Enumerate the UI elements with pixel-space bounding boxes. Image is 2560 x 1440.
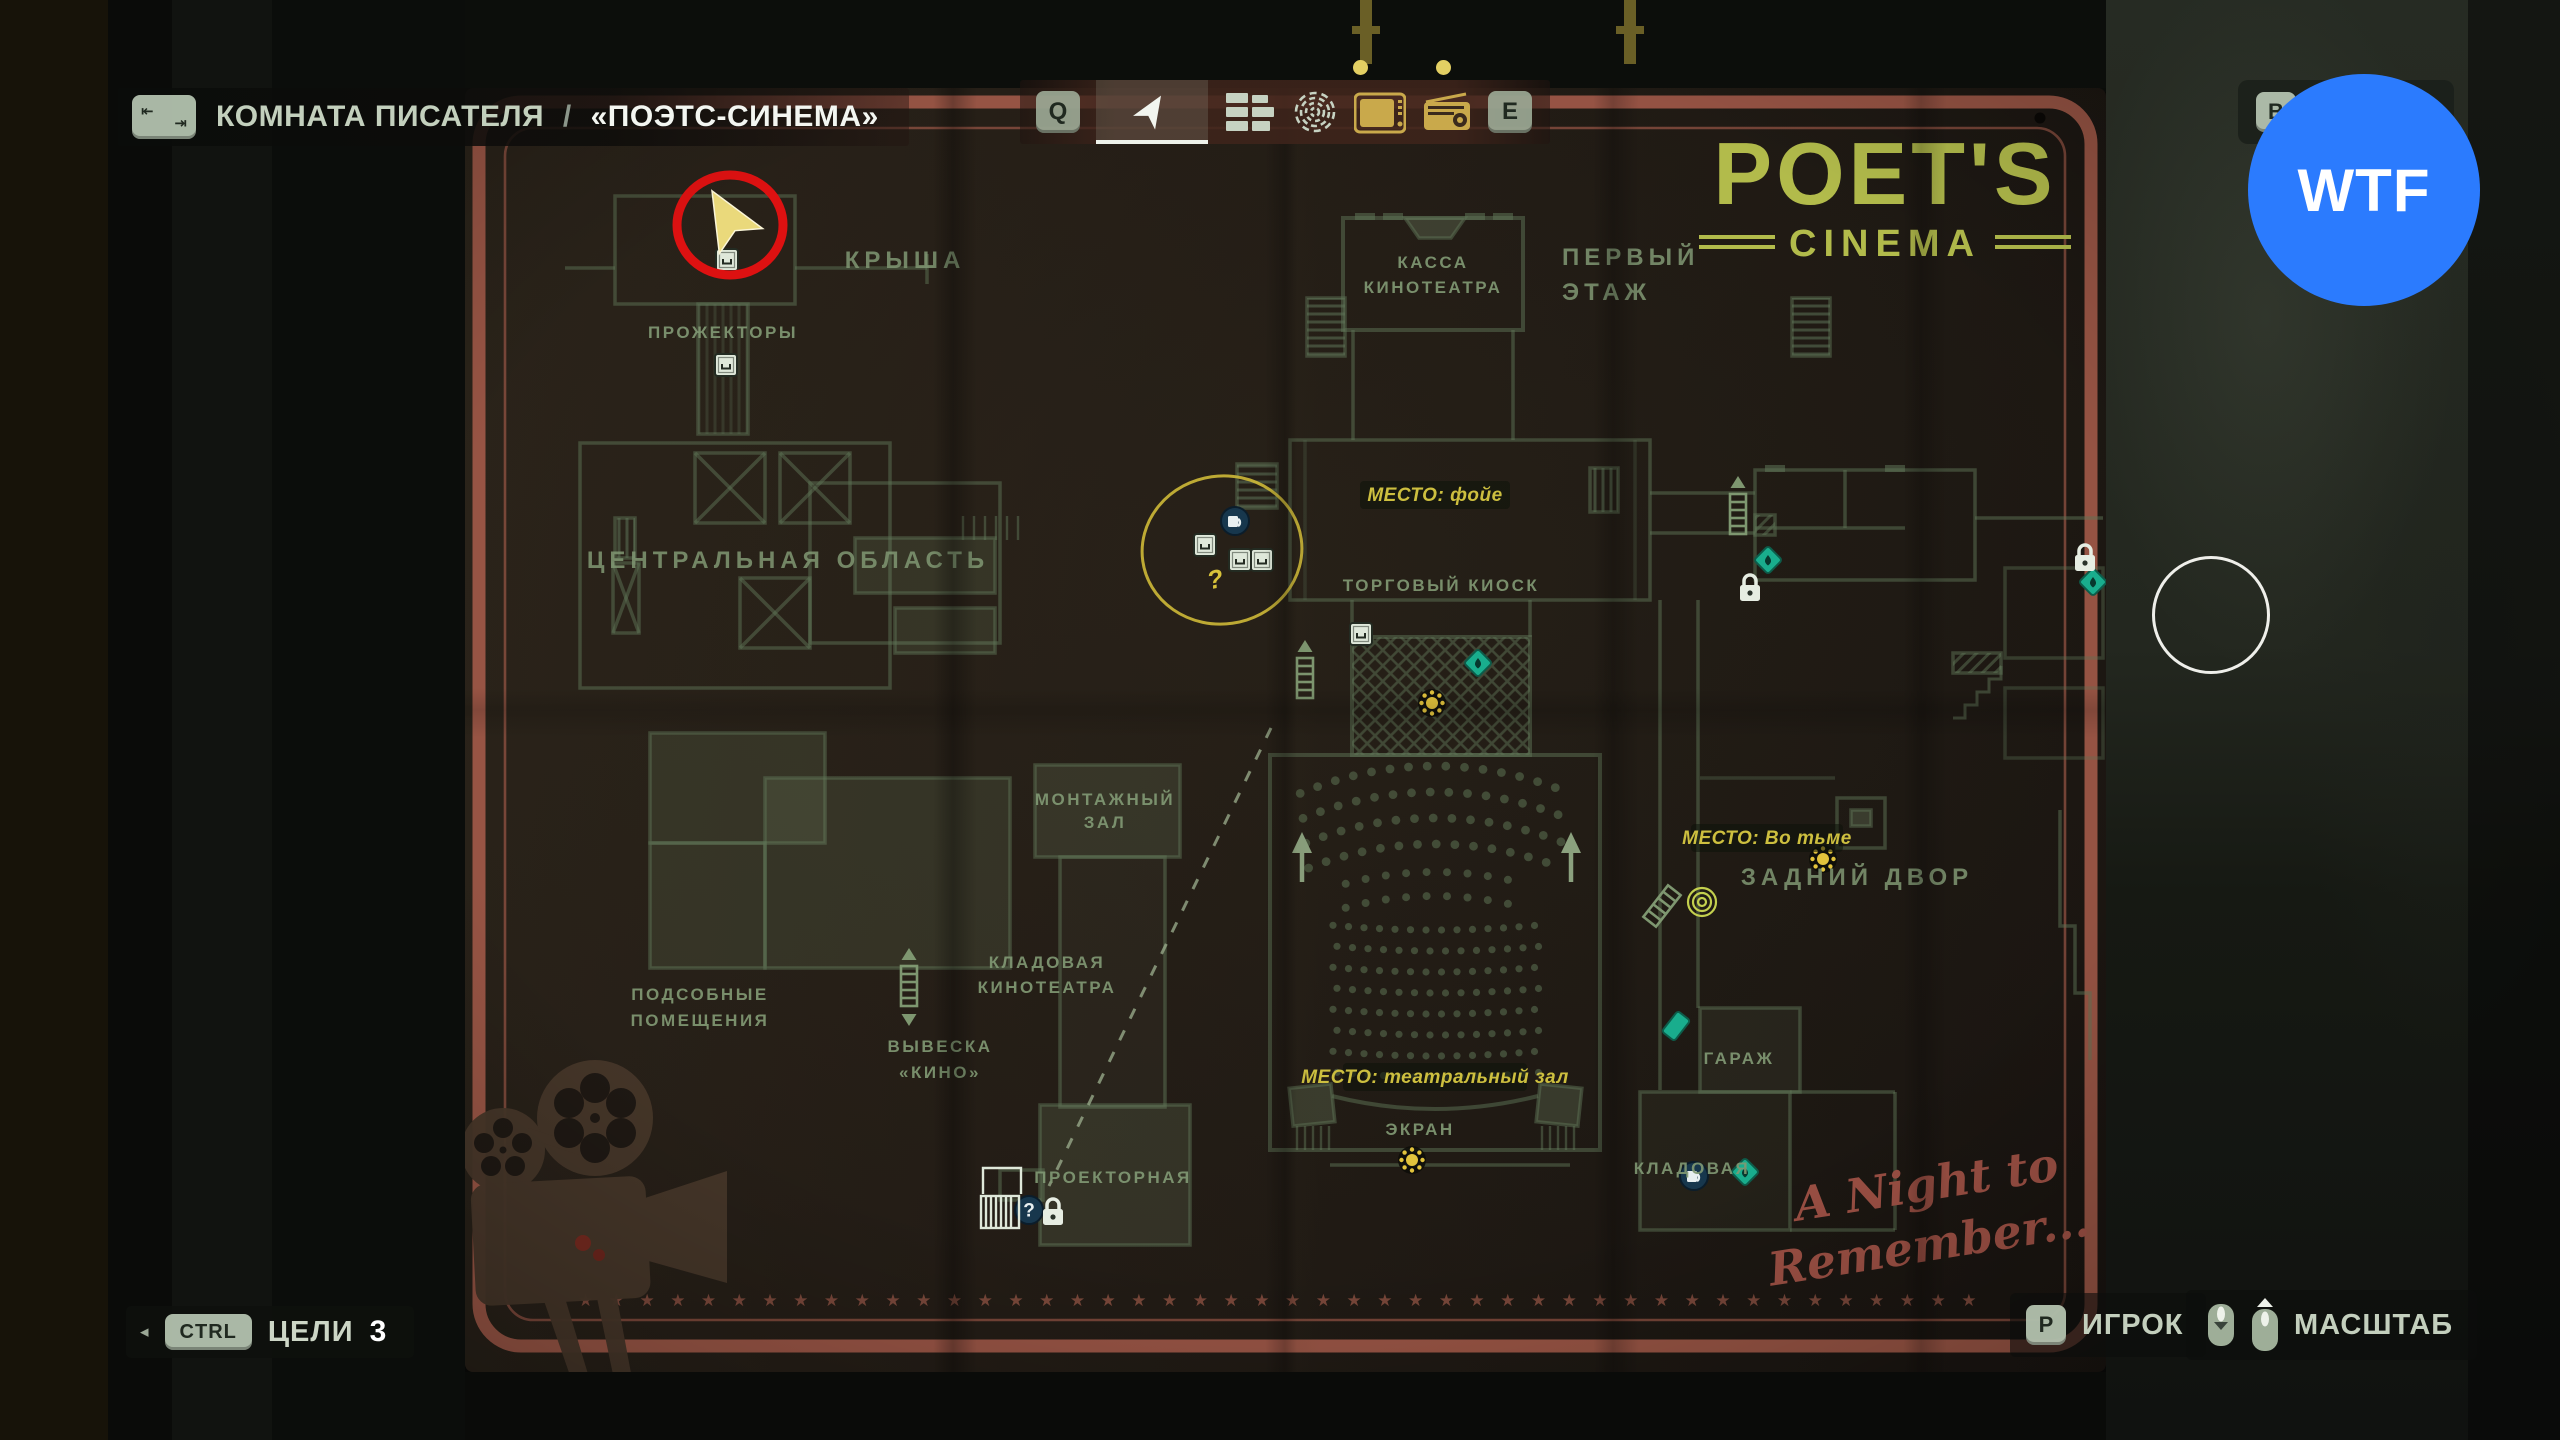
theater-seats [1296, 762, 1566, 1081]
candle-prop [1360, 0, 1372, 64]
ladder-icon [901, 966, 917, 1006]
label-utility: ПОДСОБНЫЕ [631, 985, 768, 1004]
entry-arrow-icon [1292, 832, 1312, 882]
arrow-up-icon [1298, 640, 1313, 652]
label-first-floor: ЭТАЖ [1562, 279, 1651, 306]
label-central-area: ЦЕНТРАЛЬНАЯ ОБЛАСТЬ [587, 547, 989, 574]
player-key: P [2026, 1305, 2066, 1345]
tv-icon [1354, 90, 1406, 134]
safe-light-icon [1418, 689, 1446, 717]
tab-plot-board[interactable] [1224, 80, 1276, 144]
breadcrumb: ⇤ ⇥ КОМНАТА ПИСАТЕЛЯ / «ПОЭТС-СИНЕМА» [118, 88, 909, 146]
collapse-arrow-icon: ◂ [140, 1322, 149, 1342]
breadcrumb-location: КОМНАТА ПИСАТЕЛЯ [216, 100, 544, 133]
ladder-icon [1730, 494, 1746, 534]
label-utility: ПОМЕЩЕНИЯ [631, 1011, 770, 1030]
coffee-thermos-icon [1221, 507, 1249, 535]
cycle-left-key: Q [1036, 91, 1080, 133]
candle-prop [1624, 0, 1636, 64]
poster-brand: POET'S CINEMA [1699, 124, 2071, 265]
ladder-icon [1297, 658, 1313, 698]
arrow-up-icon [1731, 476, 1746, 488]
tab-videos[interactable] [1354, 80, 1406, 144]
label-storage: КЛАДОВАЯ [1634, 1159, 1750, 1178]
mouse-scroll-up-icon [2250, 1298, 2280, 1352]
door-icon [1251, 549, 1273, 571]
pushpin [2035, 113, 2046, 124]
mind-place-toolbar: Q [1020, 80, 1550, 144]
map-poster[interactable]: ? ★★★★★★★★★★★★★★★★★★★★★★★★★★★ [465, 88, 2106, 1372]
tab-key-icon: ⇤ ⇥ [132, 95, 196, 139]
yellow-circle-annotation [1132, 466, 1311, 635]
door-icon [715, 354, 737, 376]
notification-dot [1353, 60, 1368, 75]
lock-icon [1740, 575, 1760, 601]
tab-echoes[interactable] [1292, 80, 1338, 144]
mouse-cursor-ring [2152, 556, 2270, 674]
handwritten-note: A Night to Remember... [1753, 1133, 2092, 1297]
map-cursor-icon [1132, 90, 1172, 130]
player-marker-icon [690, 178, 762, 253]
safe-light-icon [1398, 1146, 1426, 1174]
spiral-icon [1292, 89, 1338, 135]
objectives-count: 3 [370, 1315, 387, 1349]
cinema-map[interactable]: ? ★★★★★★★★★★★★★★★★★★★★★★★★★★★ [465, 88, 2106, 1372]
door-icon [1194, 534, 1216, 556]
watermark-text: WTF [2298, 156, 2431, 225]
breadcrumb-separator: / [563, 100, 572, 133]
label-garage: ГАРАЖ [1704, 1049, 1775, 1068]
battery-pickup-icon [1662, 1011, 1691, 1041]
label-editing-room: МОНТАЖНЫЙ [1035, 790, 1175, 809]
label-editing-room: ЗАЛ [1084, 813, 1127, 832]
background-left-columns [0, 0, 465, 1440]
label-cinema-storage: КЛАДОВАЯ [989, 953, 1105, 972]
objectives-label: ЦЕЛИ [268, 1316, 354, 1349]
label-sign: ВЫВЕСКА [888, 1037, 993, 1056]
door-icon [1229, 549, 1251, 571]
place-foyer: МЕСТО: фойе [1367, 485, 1502, 506]
door-icon [1350, 623, 1372, 645]
background-top [465, 0, 2106, 92]
zoom-control[interactable]: МАСШТАБ [2186, 1290, 2477, 1360]
label-box-office: КАССА [1397, 253, 1468, 272]
zoom-label: МАСШТАБ [2294, 1309, 2453, 1342]
case-board-icon [1224, 91, 1276, 133]
radio-icon [1422, 90, 1472, 134]
background-bottom [465, 1368, 2106, 1440]
arrow-down-icon [902, 1014, 917, 1026]
breadcrumb-map-title: «ПОЭТС-СИНЕМА» [591, 100, 879, 133]
background-right-edge [2468, 0, 2560, 1440]
label-screen: ЭКРАН [1385, 1120, 1454, 1139]
utility-rooms [650, 538, 1010, 968]
watermark-badge: WTF [2248, 74, 2480, 306]
brand-title: POET'S [1713, 124, 2056, 223]
yellow-question-annotation: ? [1204, 563, 1226, 596]
center-player-button[interactable]: P ИГРОК [2010, 1293, 2206, 1357]
label-backyard: ЗАДНИЙ ДВОР [1741, 863, 1973, 891]
ladder-icon [1643, 885, 1680, 926]
label-roof: КРЫША [845, 247, 966, 274]
tab-radio[interactable] [1422, 80, 1472, 144]
mouse-scroll-down-icon [2206, 1300, 2236, 1350]
cycle-right-key: E [1488, 91, 1532, 133]
label-projectors: ПРОЖЕКТОРЫ [648, 323, 798, 342]
echo-icon [1688, 888, 1716, 916]
label-cinema-storage: КИНОТЕАТРА [978, 978, 1117, 997]
place-theater-hall: МЕСТО: театральный зал [1301, 1067, 1569, 1088]
label-box-office: КИНОТЕАТРА [1364, 278, 1503, 297]
label-kiosk: ТОРГОВЫЙ КИОСК [1343, 576, 1540, 595]
label-first-floor: ПЕРВЫЙ [1562, 243, 1699, 271]
manuscript-pickup-icon [1754, 546, 1782, 574]
ctrl-key: CTRL [165, 1314, 252, 1350]
label-sign: «КИНО» [899, 1063, 981, 1082]
player-label: ИГРОК [2082, 1309, 2184, 1342]
brand-subtitle: CINEMA [1789, 223, 1981, 265]
place-in-the-dark: МЕСТО: Во тьме [1682, 828, 1852, 849]
poster-border: ★★★★★★★★★★★★★★★★★★★★★★★★★★★★★★★★★★★★★★★★… [479, 102, 2091, 1346]
notification-dot [1436, 60, 1451, 75]
label-projection-room: ПРОЕКТОРНАЯ [1034, 1168, 1192, 1187]
tab-map[interactable] [1096, 80, 1208, 144]
objectives-toggle[interactable]: ◂ CTRL ЦЕЛИ 3 [126, 1306, 414, 1358]
